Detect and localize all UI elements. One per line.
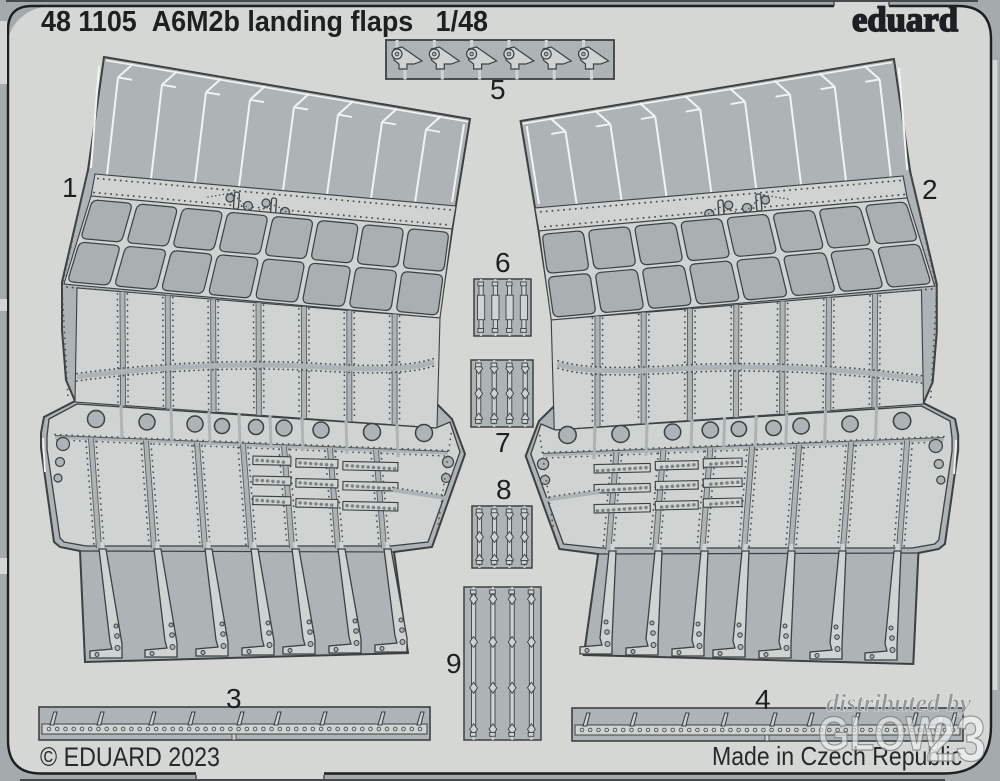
svg-text:8: 8 xyxy=(496,474,512,505)
svg-text:4: 4 xyxy=(755,684,771,715)
svg-text:48 1105 A6M2b landing flaps: 48 1105 A6M2b landing flaps 1/48 xyxy=(41,6,488,38)
svg-text:1: 1 xyxy=(62,172,78,203)
svg-text:5: 5 xyxy=(490,74,506,105)
svg-text:23: 23 xyxy=(926,703,986,775)
svg-text:6: 6 xyxy=(495,247,511,278)
svg-text:© EDUARD 2023: © EDUARD 2023 xyxy=(40,742,220,772)
svg-text:9: 9 xyxy=(446,648,462,679)
svg-text:3: 3 xyxy=(226,683,242,714)
svg-text:7: 7 xyxy=(495,427,511,458)
svg-text:2: 2 xyxy=(922,174,938,205)
svg-text:eduard: eduard xyxy=(852,0,959,39)
